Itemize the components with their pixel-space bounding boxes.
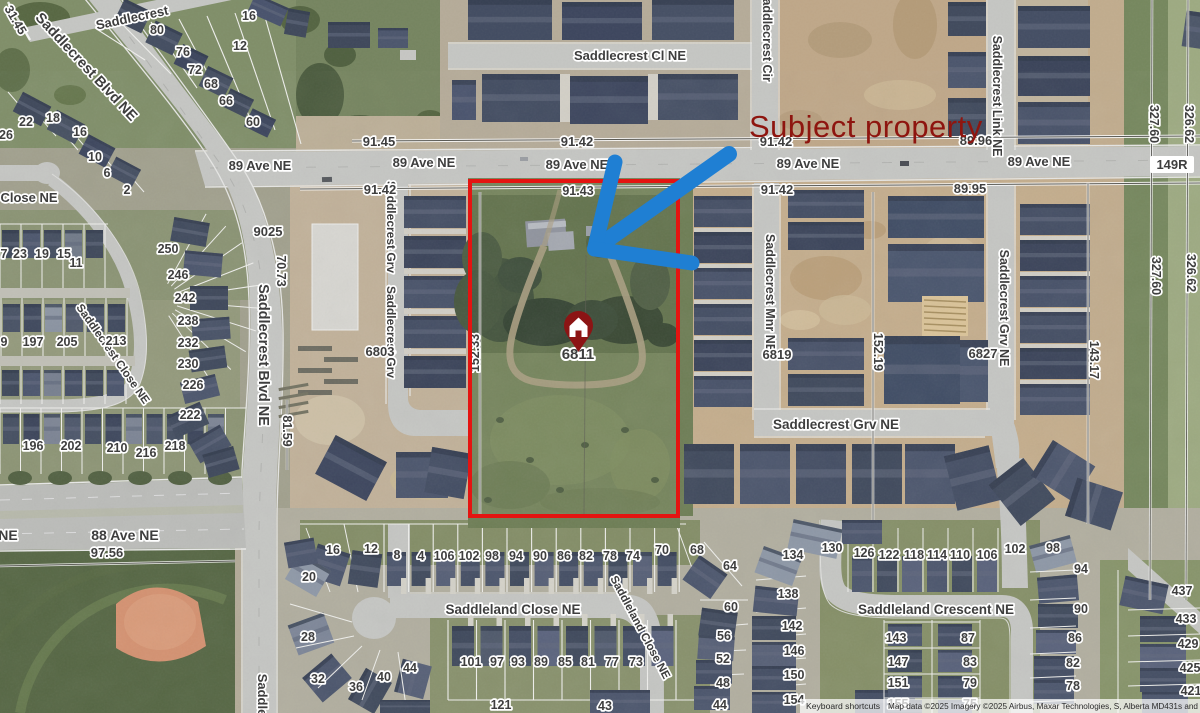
svg-text:151: 151 [888,676,909,690]
svg-text:202: 202 [61,439,82,453]
svg-text:106: 106 [977,548,998,562]
svg-text:Saddleland Close NE: Saddleland Close NE [445,602,580,617]
svg-text:16: 16 [326,543,340,557]
svg-text:97: 97 [490,655,504,669]
svg-text:9025: 9025 [254,224,283,239]
svg-text:118: 118 [904,548,924,562]
svg-text:NE: NE [0,527,18,543]
svg-text:32: 32 [311,672,325,686]
svg-text:85: 85 [558,655,572,669]
svg-text:218: 218 [165,439,186,453]
svg-text:26: 26 [0,128,13,142]
svg-text:44: 44 [403,661,417,675]
svg-text:6819: 6819 [763,347,792,362]
svg-text:327.60: 327.60 [1147,105,1161,143]
svg-text:152.19: 152.19 [871,333,885,371]
svg-text:t Close NE: t Close NE [0,190,58,205]
svg-text:60: 60 [246,115,260,129]
svg-text:Saddlecrest Cl NE: Saddlecrest Cl NE [574,48,686,63]
svg-text:222: 222 [180,408,201,422]
svg-text:22: 22 [19,115,33,129]
svg-text:Saddlecrest Grv NE: Saddlecrest Grv NE [997,250,1011,367]
svg-text:10: 10 [88,150,102,164]
svg-text:78: 78 [1066,679,1080,693]
svg-text:126: 126 [854,546,875,560]
svg-text:87: 87 [961,631,975,645]
svg-text:89 Ave NE: 89 Ave NE [777,156,840,171]
svg-text:82: 82 [1066,656,1080,670]
svg-text:68: 68 [690,543,704,557]
svg-text:4: 4 [418,549,425,563]
svg-text:6803: 6803 [366,344,395,359]
svg-text:19: 19 [35,247,49,261]
svg-text:70.73: 70.73 [274,255,288,286]
svg-text:89 Ave NE: 89 Ave NE [546,157,609,172]
svg-text:242: 242 [175,291,196,305]
svg-text:130: 130 [822,541,843,555]
svg-text:226: 226 [183,378,204,392]
svg-text:73: 73 [629,655,643,669]
svg-text:8: 8 [394,548,401,562]
svg-text:121: 121 [491,698,512,712]
svg-text:89 Ave NE: 89 Ave NE [393,155,456,170]
svg-text:102: 102 [459,549,480,563]
svg-text:232: 232 [178,336,199,350]
svg-text:66: 66 [219,94,233,108]
svg-text:76: 76 [176,45,190,59]
svg-text:122: 122 [879,548,900,562]
svg-text:78: 78 [603,549,617,563]
svg-text:91.42: 91.42 [561,134,594,149]
svg-text:82: 82 [579,549,593,563]
svg-text:36: 36 [349,680,363,694]
svg-text:28: 28 [301,630,315,644]
svg-text:7: 7 [1,247,8,261]
svg-text:2: 2 [124,183,131,197]
svg-text:40: 40 [377,670,391,684]
svg-text:90: 90 [1074,602,1088,616]
svg-text:18: 18 [46,111,60,125]
svg-text:142: 142 [782,619,803,633]
svg-text:327.60: 327.60 [1149,257,1163,295]
svg-text:16: 16 [242,9,256,23]
svg-text:433: 433 [1176,612,1197,626]
svg-text:79: 79 [963,676,977,690]
svg-text:98: 98 [1046,541,1060,555]
svg-text:93: 93 [511,655,525,669]
svg-text:43: 43 [598,699,612,713]
svg-text:81: 81 [581,655,595,669]
svg-text:106: 106 [434,549,455,563]
svg-text:101: 101 [461,655,482,669]
svg-text:94: 94 [1074,562,1088,576]
svg-text:Saddlecrest Grv NE: Saddlecrest Grv NE [773,417,899,432]
svg-text:149R: 149R [1156,157,1188,172]
svg-text:56: 56 [717,629,731,643]
svg-text:97.56: 97.56 [91,545,124,560]
svg-text:91.42: 91.42 [364,182,397,197]
svg-text:23: 23 [13,247,27,261]
svg-text:88 Ave NE: 88 Ave NE [91,527,158,543]
svg-text:6827: 6827 [969,346,998,361]
svg-text:64: 64 [723,559,737,573]
svg-text:91.45: 91.45 [363,134,396,149]
svg-text:86: 86 [557,549,571,563]
svg-text:90: 90 [533,549,547,563]
svg-text:Saddle: Saddle [255,674,270,713]
svg-text:326.62: 326.62 [1182,105,1196,143]
svg-text:246: 246 [168,268,189,282]
svg-text:Saddlecrest Blvd NE: Saddlecrest Blvd NE [255,284,271,426]
svg-text:205: 205 [57,335,78,349]
svg-text:72: 72 [188,63,202,77]
svg-text:89.95: 89.95 [954,181,987,196]
svg-text:52: 52 [716,652,730,666]
svg-text:60: 60 [724,600,738,614]
svg-text:81.59: 81.59 [280,415,294,446]
svg-text:Map data ©2025 Imagery ©2025 A: Map data ©2025 Imagery ©2025 Airbus, Max… [888,701,1198,711]
svg-text:213: 213 [106,334,127,348]
svg-text:210: 210 [107,441,128,455]
svg-text:110: 110 [950,548,970,562]
svg-text:89 Ave NE: 89 Ave NE [1008,154,1071,169]
svg-text:89 Ave NE: 89 Ave NE [229,158,292,173]
svg-text:146: 146 [784,644,805,658]
svg-text:20: 20 [302,570,316,584]
svg-text:89: 89 [534,655,548,669]
svg-text:11: 11 [69,256,82,270]
svg-text:74: 74 [626,549,640,563]
svg-text:421: 421 [1181,684,1200,698]
svg-text:12: 12 [233,39,247,53]
svg-text:326.62: 326.62 [1184,254,1198,292]
svg-text:238: 238 [178,314,199,328]
svg-text:9: 9 [1,335,8,349]
svg-text:Subject property: Subject property [749,109,983,144]
svg-text:Keyboard shortcuts: Keyboard shortcuts [806,701,880,711]
svg-text:138: 138 [778,587,799,601]
svg-text:91.42: 91.42 [761,182,794,197]
svg-text:12: 12 [364,542,378,556]
svg-text:102: 102 [1005,542,1026,556]
svg-text:429: 429 [1178,637,1199,651]
svg-text:94: 94 [509,549,523,563]
svg-text:150: 150 [784,668,805,682]
svg-text:Saddlecrest Mnr NE: Saddlecrest Mnr NE [763,234,777,352]
svg-text:Saddleland Crescent NE: Saddleland Crescent NE [858,602,1014,617]
svg-text:77: 77 [605,655,619,669]
svg-text:80: 80 [150,23,164,37]
svg-text:147: 147 [888,655,909,669]
svg-text:196: 196 [23,439,44,453]
svg-text:Saddlecrest Grv: Saddlecrest Grv [384,286,398,378]
svg-text:197: 197 [23,335,44,349]
svg-text:114: 114 [927,548,947,562]
svg-text:48: 48 [716,676,730,690]
svg-text:16: 16 [73,125,87,139]
svg-text:83: 83 [963,655,977,669]
svg-text:143.17: 143.17 [1087,341,1101,379]
svg-text:230: 230 [178,357,199,371]
svg-text:250: 250 [158,242,179,256]
svg-text:143: 143 [886,631,907,645]
svg-text:437: 437 [1172,584,1193,598]
svg-text:68: 68 [204,77,218,91]
svg-text:425: 425 [1180,661,1200,675]
svg-text:70: 70 [655,543,669,557]
svg-text:44: 44 [713,698,727,712]
svg-text:91.43: 91.43 [562,184,593,198]
svg-text:6: 6 [104,166,111,180]
svg-text:Saddlecrest Cir: Saddlecrest Cir [760,0,774,82]
svg-text:134: 134 [783,548,804,562]
svg-text:86: 86 [1068,631,1082,645]
svg-text:216: 216 [136,446,157,460]
svg-text:98: 98 [485,549,499,563]
